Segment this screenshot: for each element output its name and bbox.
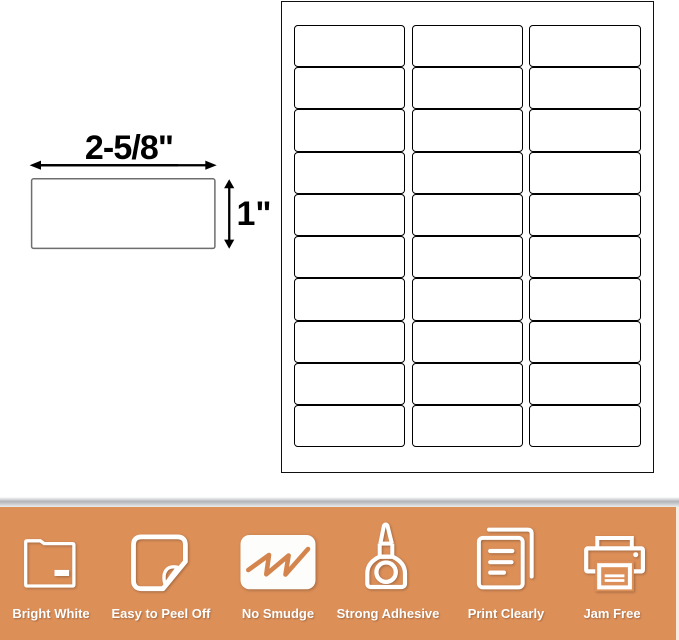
svg-text:2-5/8": 2-5/8": [85, 129, 173, 167]
svg-text:1": 1": [237, 195, 272, 233]
